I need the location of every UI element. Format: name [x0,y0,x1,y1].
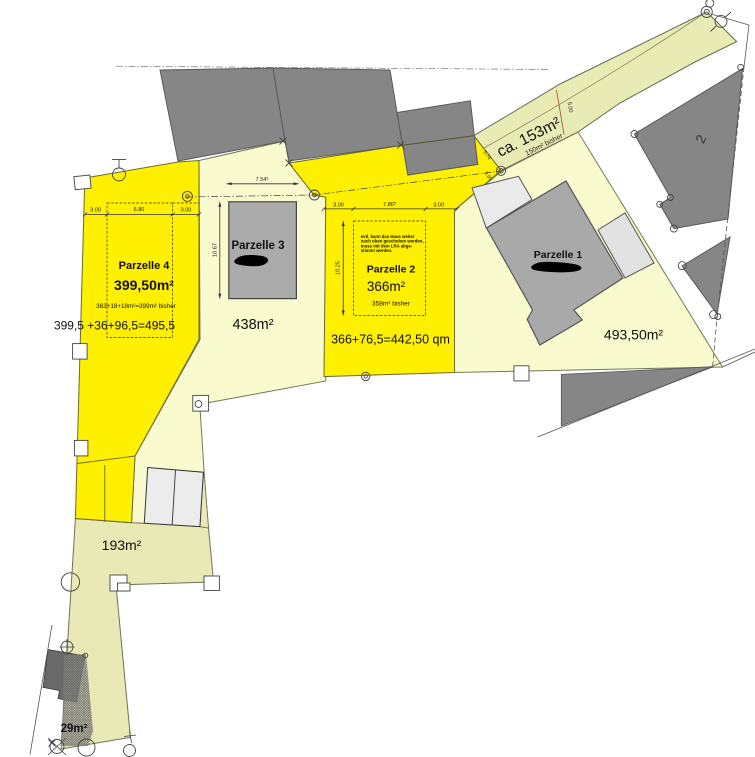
svg-text:493,50m²: 493,50m² [604,327,663,343]
svg-text:3.00: 3.00 [433,203,444,209]
svg-text:438m²: 438m² [232,317,273,333]
svg-text:399,50m²: 399,50m² [114,277,174,293]
svg-text:Parzelle 1: Parzelle 1 [534,249,583,261]
svg-text:Parzelle 3: Parzelle 3 [231,240,284,252]
svg-text:3.00: 3.00 [181,208,192,214]
svg-text:stimmt werden.: stimmt werden. [361,248,393,253]
svg-text:3.00: 3.00 [333,203,344,209]
svg-text:10.25: 10.25 [336,261,342,275]
svg-text:363+18+18m²=399m² bisher: 363+18+18m²=399m² bisher [96,303,176,310]
svg-text:Parzelle 4: Parzelle 4 [119,260,171,272]
svg-text:366+76,5=442,50 qm: 366+76,5=442,50 qm [331,333,450,347]
svg-text:29m²: 29m² [61,723,88,735]
svg-text:10.67: 10.67 [213,243,219,257]
svg-text:193m²: 193m² [102,537,142,553]
svg-text:366m²: 366m² [367,279,406,294]
svg-text:3.00: 3.00 [90,208,101,214]
svg-text:358m² bisher: 358m² bisher [372,301,411,308]
svg-text:Parzelle 2: Parzelle 2 [367,264,416,276]
svg-text:399,5 +36+96,5=495,5: 399,5 +36+96,5=495,5 [54,319,175,333]
svg-text:6.80: 6.80 [134,207,145,213]
